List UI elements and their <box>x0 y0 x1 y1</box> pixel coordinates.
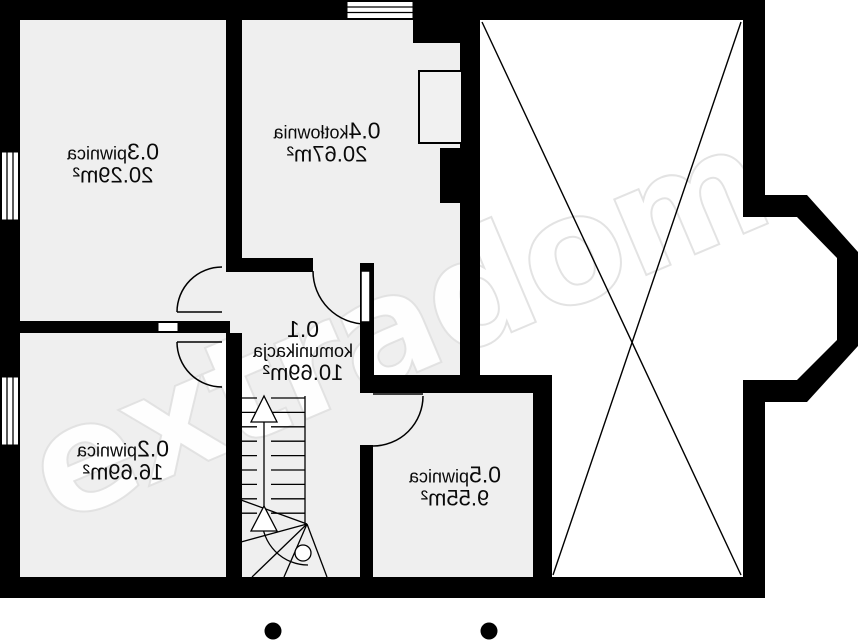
chimney-block <box>440 148 462 203</box>
wall-interior-g <box>226 333 242 577</box>
wall-bottom <box>0 577 765 598</box>
floor-plan-drawing: extradom <box>0 0 860 644</box>
floor-plan: extradom <box>0 0 860 644</box>
wall-interior-d <box>360 375 552 393</box>
door-leaf-pocket <box>158 323 178 332</box>
vent-top <box>347 2 413 19</box>
wall-interior-f <box>0 321 230 333</box>
stair-newel-post <box>295 545 311 561</box>
wall-right-lower <box>743 380 765 598</box>
wall-interior-b <box>226 258 313 272</box>
wall-interior-h <box>360 445 373 577</box>
wall-interior-i <box>533 393 552 577</box>
window-left-upper <box>2 152 19 220</box>
wall-left <box>0 0 20 598</box>
foundation-dot-left <box>265 623 282 640</box>
window-left-lower <box>2 377 19 445</box>
foundation-dot-right <box>481 623 498 640</box>
boiler-symbol <box>419 71 462 143</box>
wall-duct-block <box>413 20 470 43</box>
wall-right-upper <box>743 0 765 217</box>
wall-interior-a <box>226 20 242 258</box>
